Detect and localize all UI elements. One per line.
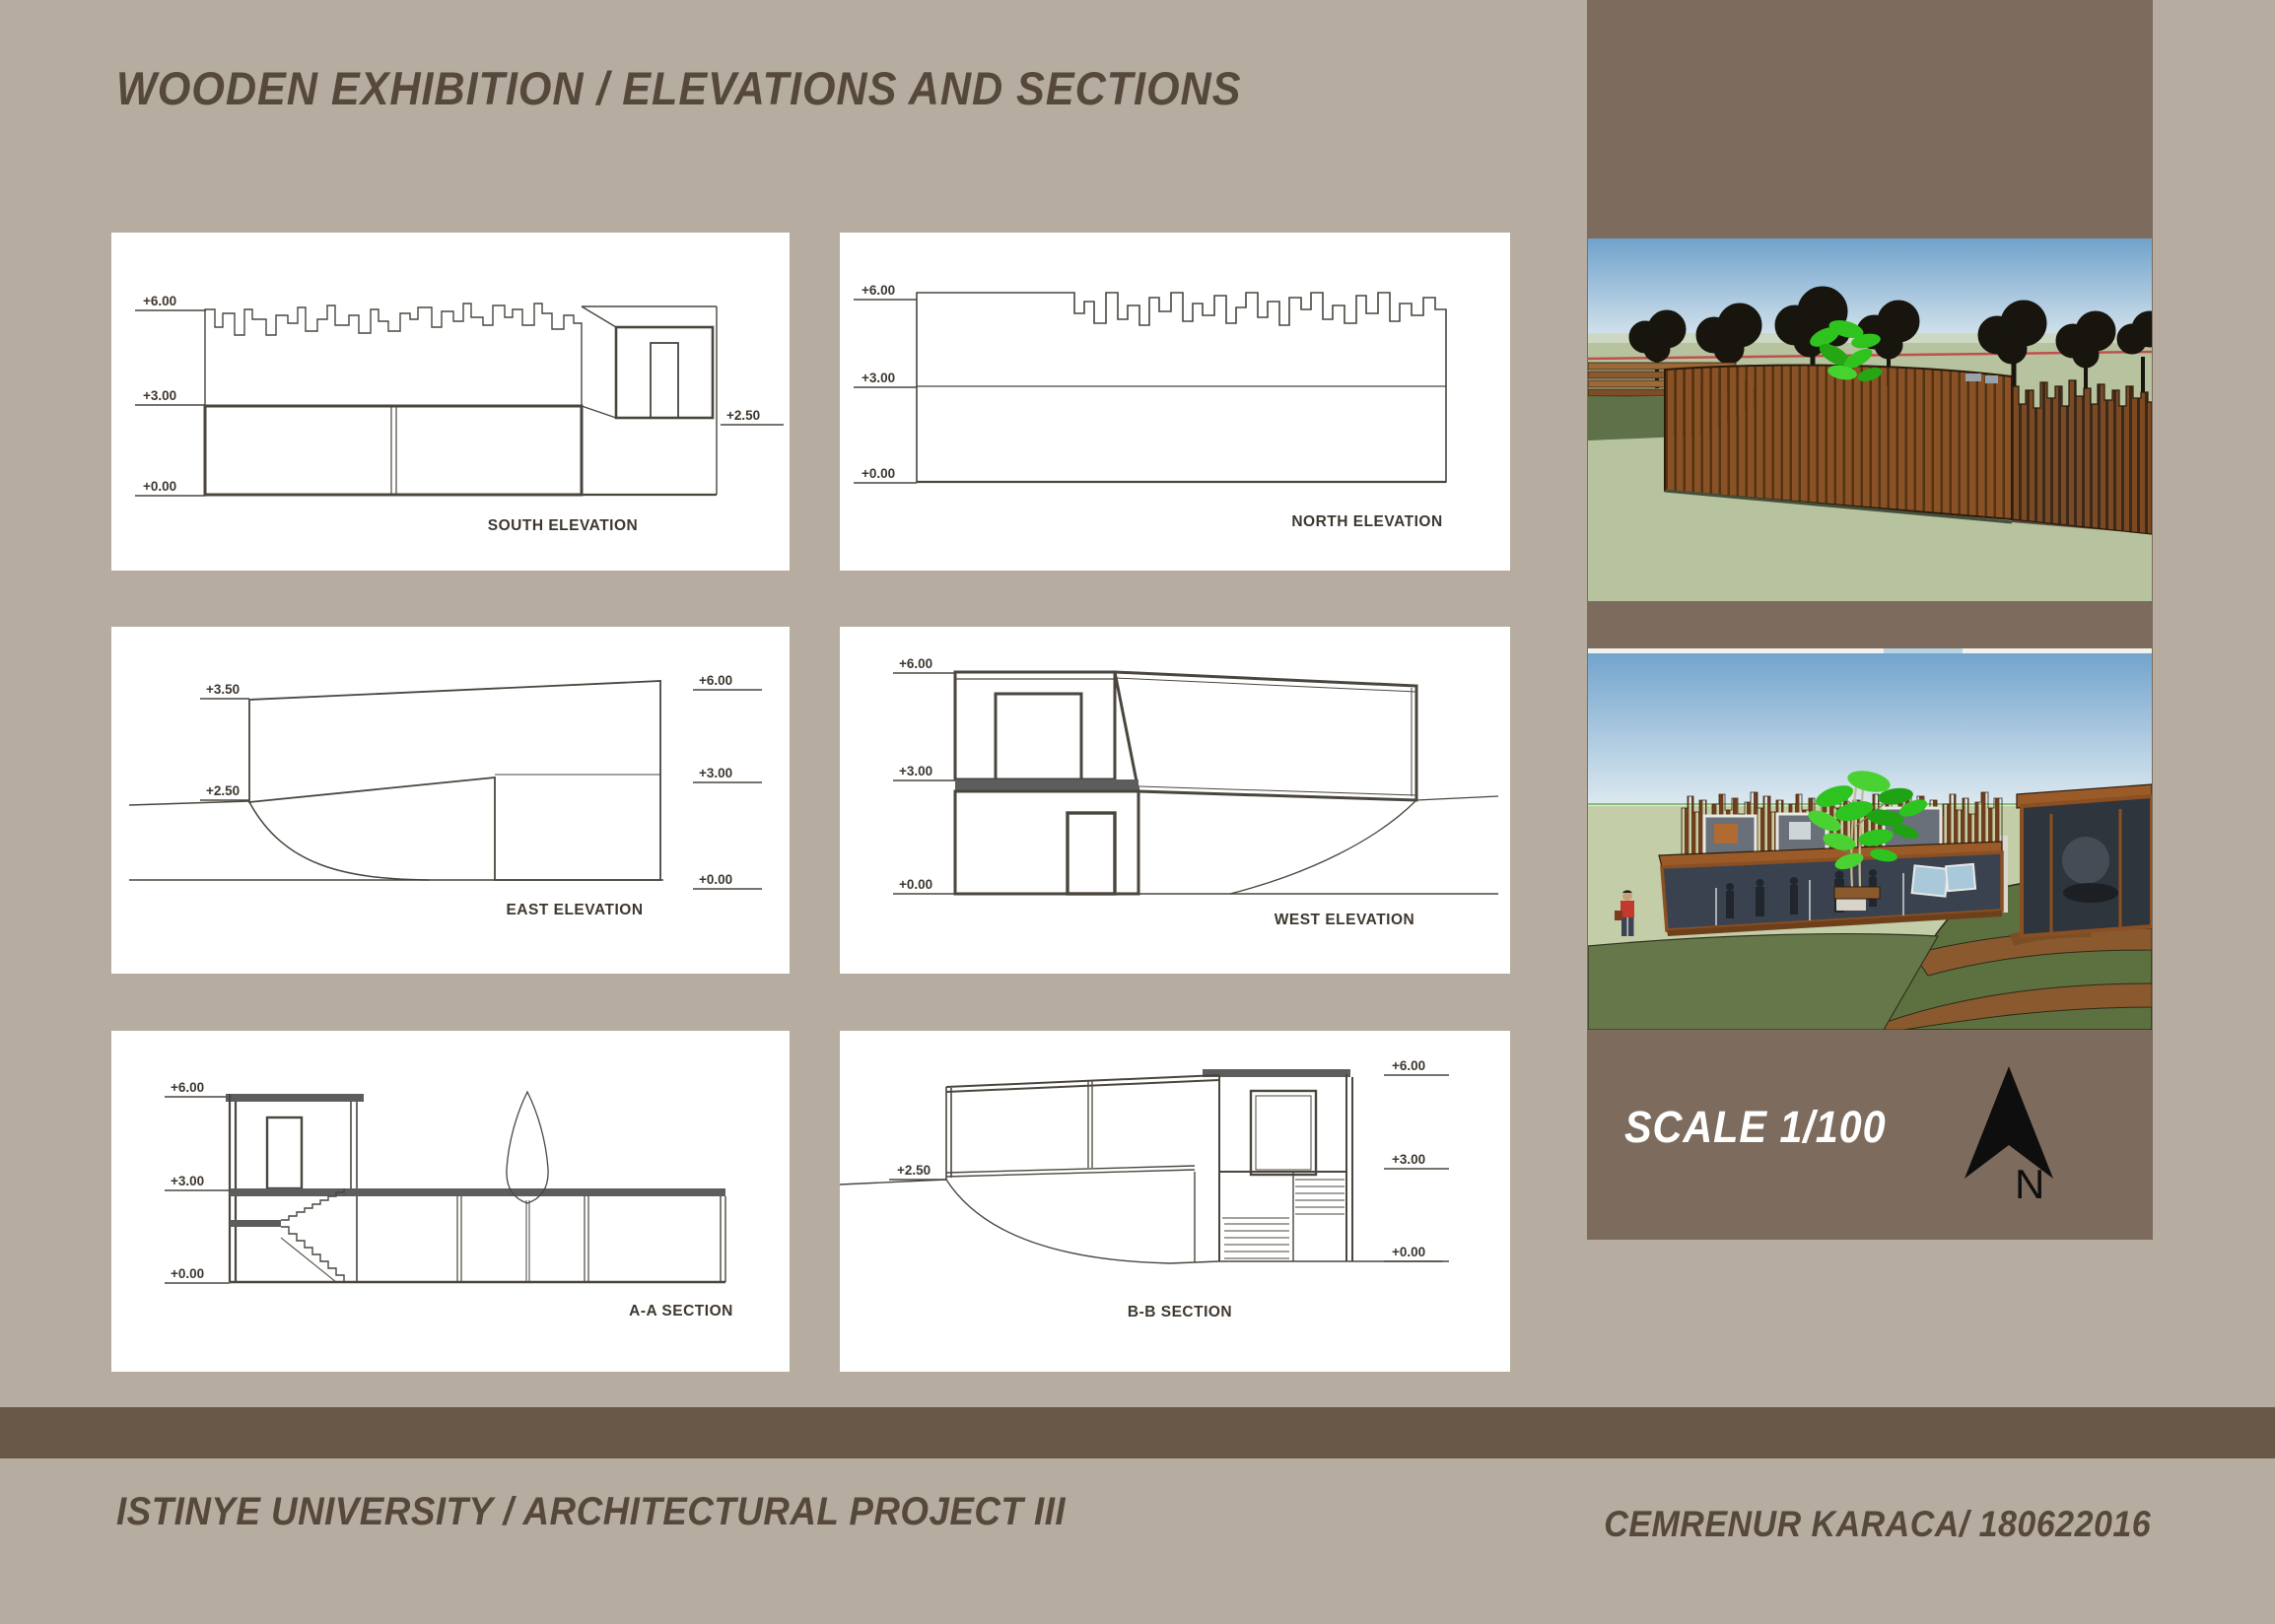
level-label: +3.00 bbox=[1392, 1152, 1425, 1167]
level-label: +6.00 bbox=[699, 673, 732, 688]
aa-section-drawing: +6.00 +3.00 +0.00 A-A SECTION bbox=[111, 1031, 790, 1372]
level-label: +0.00 bbox=[171, 1266, 204, 1281]
render-sectional-perspective bbox=[1588, 648, 2152, 1030]
panel-aa-section: +6.00 +3.00 +0.00 A-A SECTION bbox=[111, 1031, 790, 1372]
level-label: +0.00 bbox=[699, 872, 732, 887]
bb-section-drawing: +2.50 +6.00 +3.00 +0.00 B-B SECTION bbox=[840, 1031, 1510, 1372]
north-letter: N bbox=[2015, 1161, 2044, 1207]
sidebar: SCALE 1/100 N bbox=[1587, 0, 2153, 1240]
west-elevation-drawing: +6.00 +3.00 +0.00 WEST ELEVATION bbox=[840, 627, 1510, 974]
level-label: +2.50 bbox=[726, 408, 760, 423]
level-label: +2.50 bbox=[897, 1163, 931, 1178]
level-label: +6.00 bbox=[899, 656, 932, 671]
drawing-caption: WEST ELEVATION bbox=[1275, 912, 1414, 928]
north-elevation-drawing: +6.00 +3.00 +0.00 NORTH ELEVATION bbox=[840, 233, 1510, 571]
south-elevation-drawing: +6.00 +3.00 +0.00 +2.50 SOUTH ELEVATION bbox=[111, 233, 790, 571]
footer-bar bbox=[0, 1407, 2275, 1458]
level-label: +3.00 bbox=[171, 1174, 204, 1188]
drawing-caption: EAST ELEVATION bbox=[506, 902, 643, 918]
panel-north-elevation: +6.00 +3.00 +0.00 NORTH ELEVATION bbox=[840, 233, 1510, 571]
scale-label: SCALE 1/100 bbox=[1624, 1102, 1909, 1153]
north-arrow-icon: N bbox=[1954, 1062, 2064, 1208]
panel-south-elevation: +6.00 +3.00 +0.00 +2.50 SOUTH ELEVATION bbox=[111, 233, 790, 571]
footer-right-text: CEMRENUR KARACA/ 180622016 bbox=[1556, 1504, 2151, 1545]
east-elevation-drawing: +3.50 +2.50 +6.00 +3.00 +0.00 EAST ELEVA… bbox=[111, 627, 790, 974]
panel-bb-section: +2.50 +6.00 +3.00 +0.00 B-B SECTION bbox=[840, 1031, 1510, 1372]
level-label: +0.00 bbox=[862, 466, 895, 481]
level-label: +0.00 bbox=[899, 877, 932, 892]
level-label: +3.00 bbox=[699, 766, 732, 780]
drawing-caption: SOUTH ELEVATION bbox=[488, 517, 638, 534]
level-label: +3.00 bbox=[899, 764, 932, 778]
drawing-caption: B-B SECTION bbox=[1128, 1304, 1232, 1320]
level-label: +6.00 bbox=[862, 283, 895, 298]
level-label: +6.00 bbox=[143, 294, 176, 308]
level-label: +6.00 bbox=[1392, 1058, 1425, 1073]
drawing-caption: NORTH ELEVATION bbox=[1291, 513, 1442, 530]
level-label: +0.00 bbox=[143, 479, 176, 494]
footer-left-text: ISTINYE UNIVERSITY / ARCHITECTURAL PROJE… bbox=[116, 1490, 1148, 1534]
render-exterior-perspective bbox=[1588, 238, 2152, 601]
panel-west-elevation: +6.00 +3.00 +0.00 WEST ELEVATION bbox=[840, 627, 1510, 974]
drawing-caption: A-A SECTION bbox=[629, 1303, 733, 1319]
page-title: WOODEN EXHIBITION / ELEVATIONS AND SECTI… bbox=[116, 61, 1340, 115]
level-label: +6.00 bbox=[171, 1080, 204, 1095]
level-label: +0.00 bbox=[1392, 1245, 1425, 1259]
presentation-board: WOODEN EXHIBITION / ELEVATIONS AND SECTI… bbox=[0, 0, 2275, 1624]
level-label: +3.00 bbox=[143, 388, 176, 403]
panel-east-elevation: +3.50 +2.50 +6.00 +3.00 +0.00 EAST ELEVA… bbox=[111, 627, 790, 974]
level-label: +3.50 bbox=[206, 682, 240, 697]
level-label: +2.50 bbox=[206, 783, 240, 798]
level-label: +3.00 bbox=[862, 371, 895, 385]
